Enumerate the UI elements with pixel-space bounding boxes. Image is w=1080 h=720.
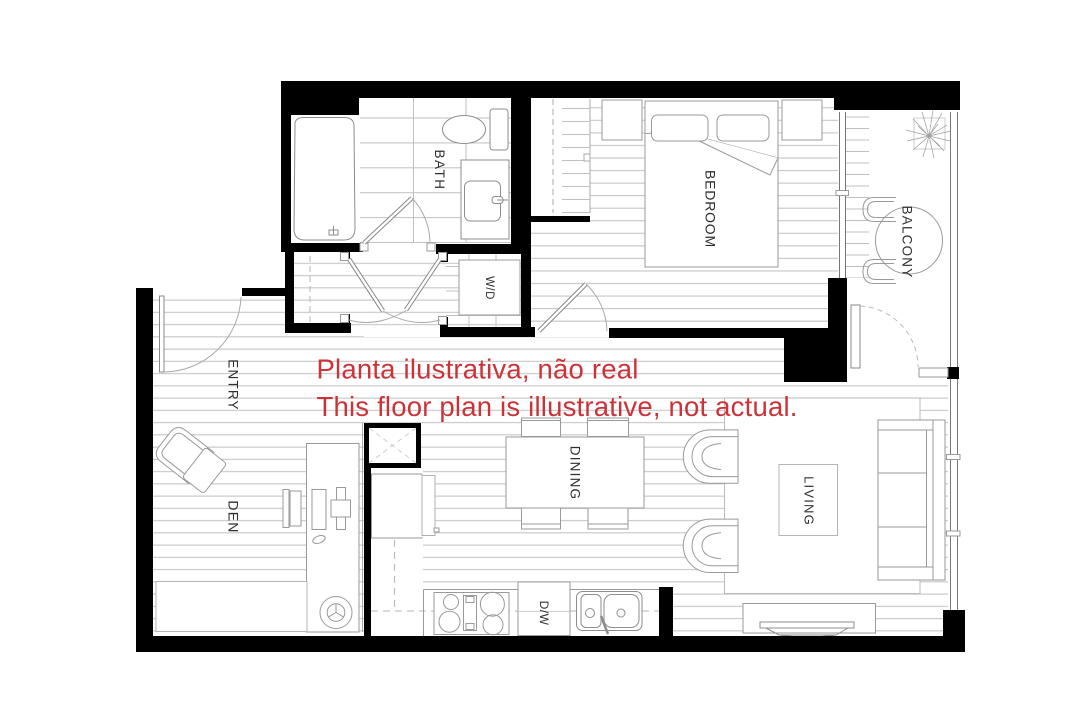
svg-text:BALCONY: BALCONY	[899, 206, 914, 279]
svg-text:W/D: W/D	[483, 276, 495, 300]
svg-text:This floor plan is illustrativ: This floor plan is illustrative, not act…	[317, 391, 798, 422]
svg-text:Planta ilustrativa, não real: Planta ilustrativa, não real	[317, 354, 639, 385]
svg-text:D/W: D/W	[537, 601, 551, 626]
svg-text:BATH: BATH	[432, 149, 447, 190]
svg-text:ENTRY: ENTRY	[225, 359, 240, 411]
svg-text:DINING: DINING	[567, 446, 582, 500]
svg-text:BEDROOM: BEDROOM	[702, 170, 718, 248]
svg-text:DEN: DEN	[225, 500, 241, 533]
svg-text:LIVING: LIVING	[802, 476, 817, 526]
